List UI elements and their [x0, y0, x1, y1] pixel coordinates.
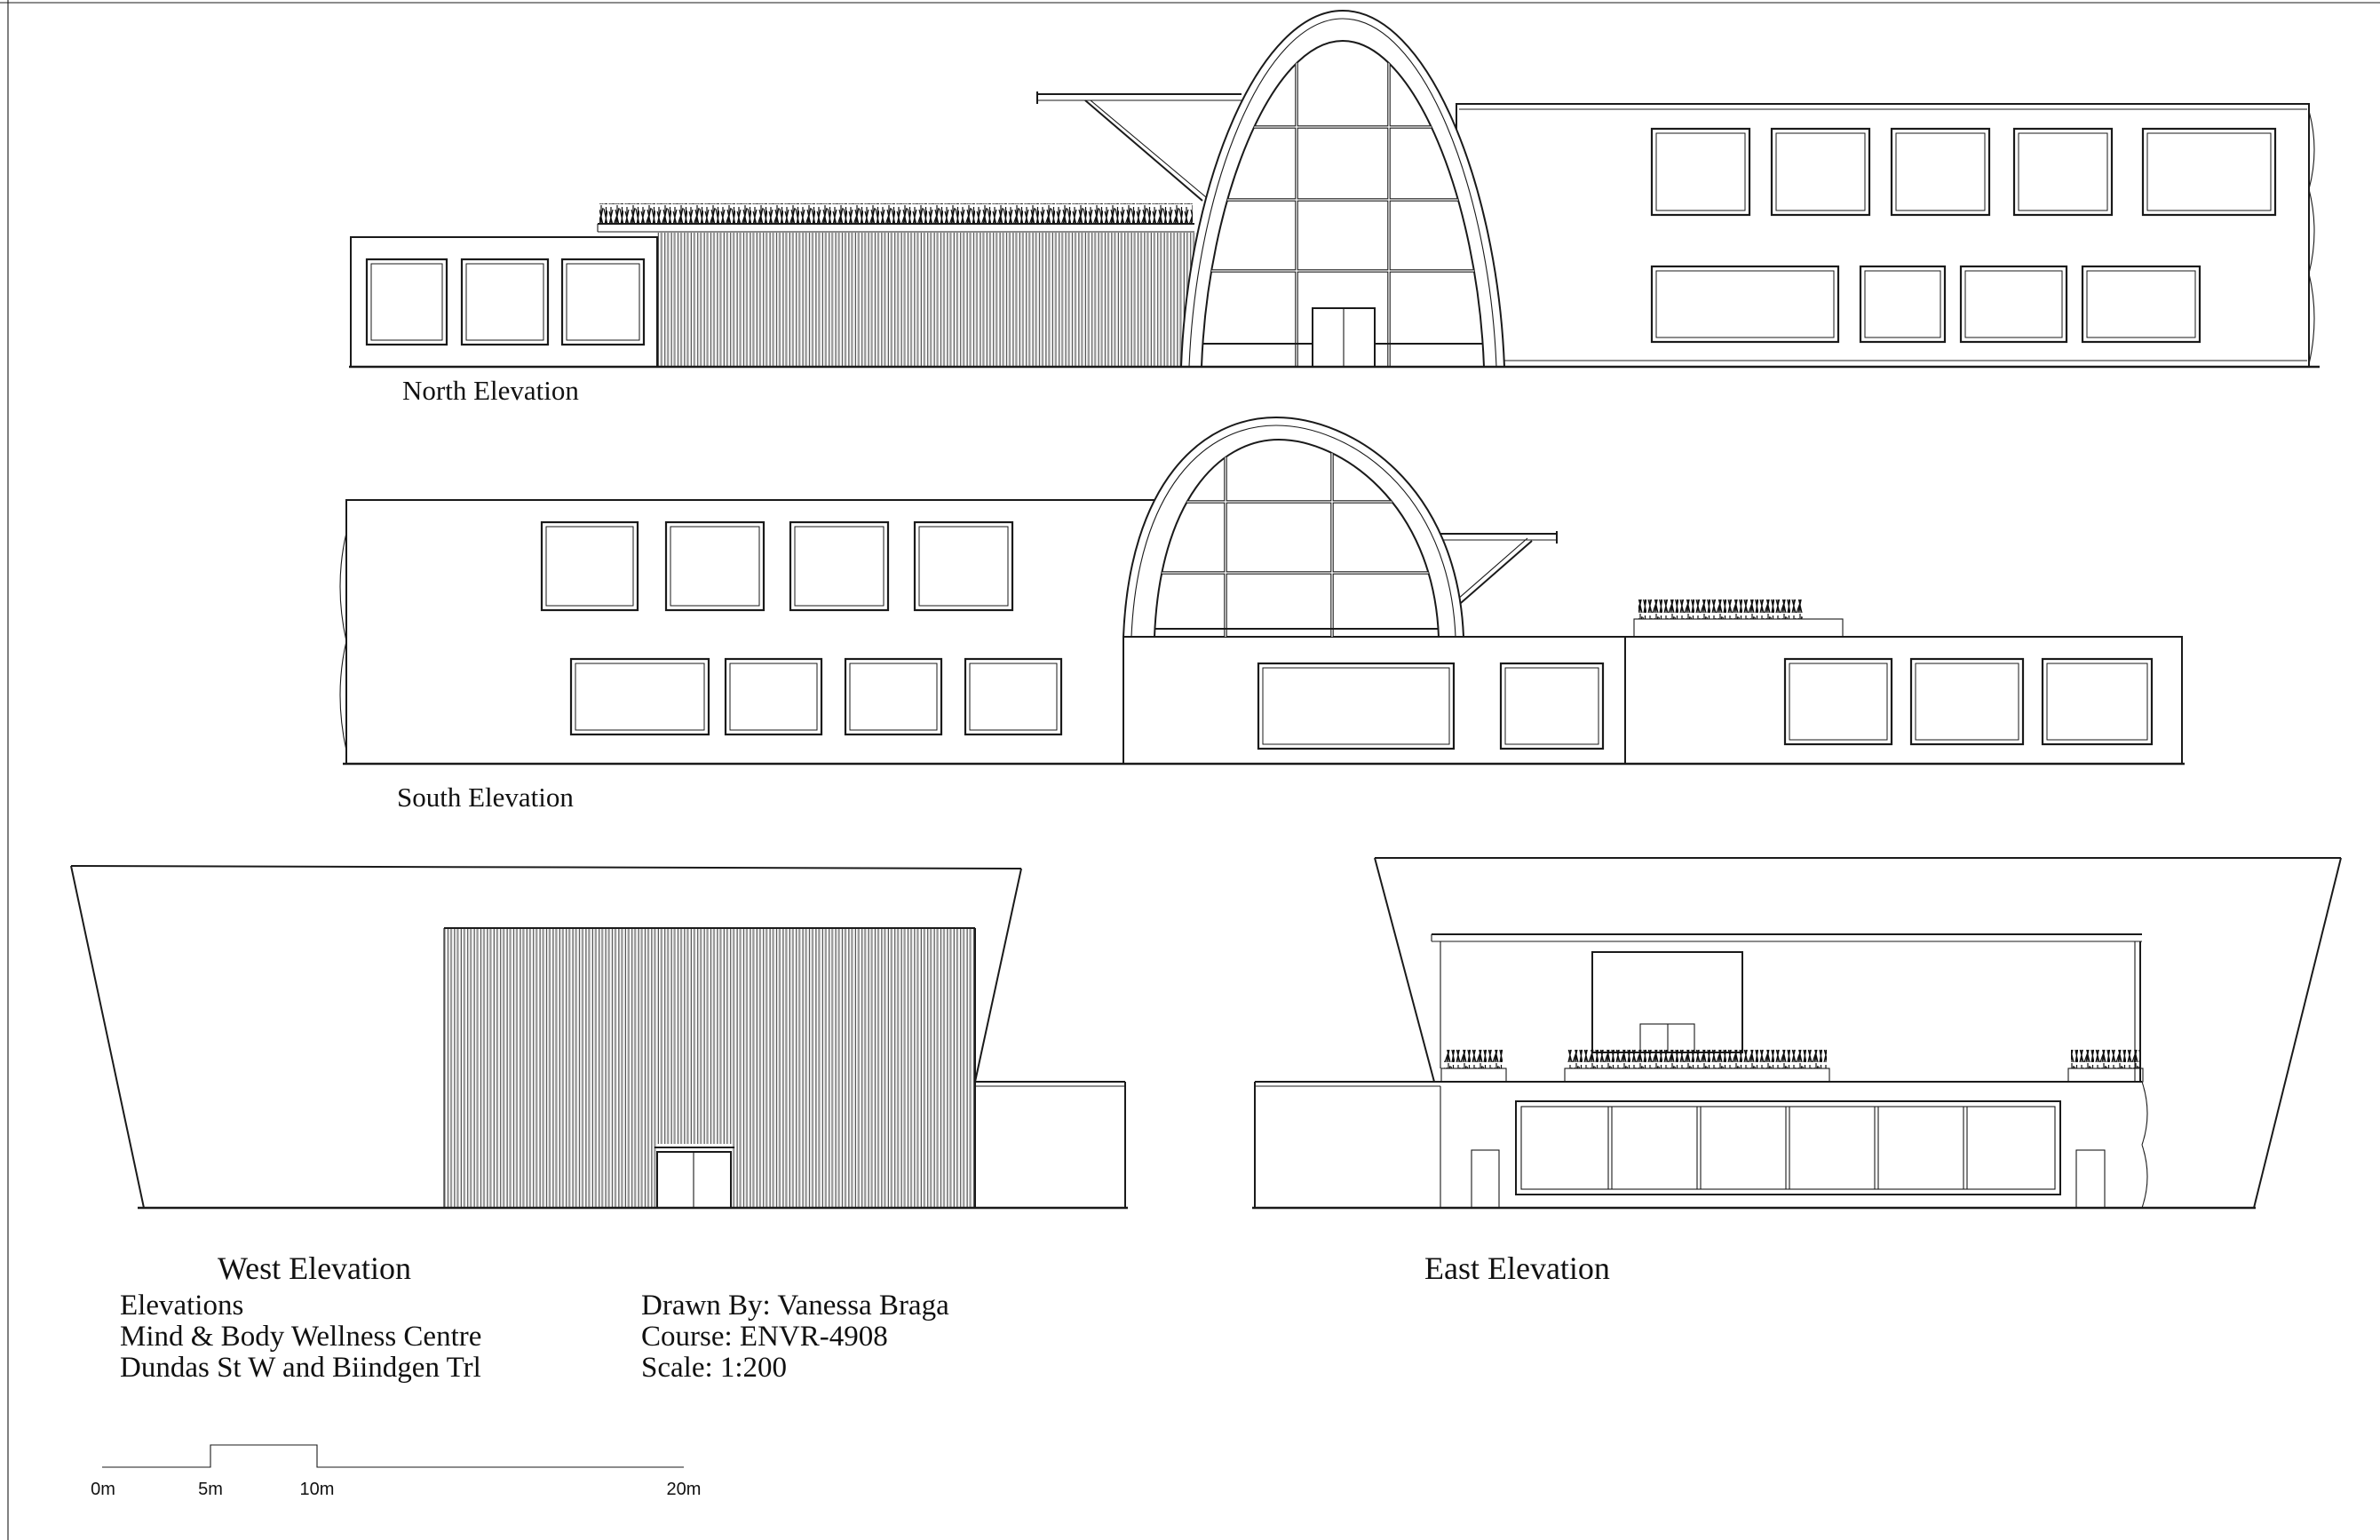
south-left-wing-windows-lower: [571, 659, 1061, 734]
north-entry-arch: [1181, 11, 1504, 367]
east-left-edge: [1375, 858, 1434, 1082]
south-front-windows: [1258, 663, 1603, 749]
title-drawn-by: Drawn By: Vanessa Braga: [641, 1290, 949, 1322]
north-left-wing-windows: [367, 259, 644, 345]
west-parapet: [71, 866, 1021, 869]
east-elevation: East Elevation: [1252, 858, 2341, 1286]
east-roof-planters: [1441, 1050, 2143, 1082]
title-course: Course: ENVR-4908: [641, 1321, 888, 1353]
east-right-post: [2076, 1150, 2105, 1208]
east-elevation-label: East Elevation: [1424, 1250, 1610, 1286]
west-elevation-label: West Elevation: [218, 1250, 411, 1286]
north-right-wing-windows-upper: [1652, 129, 2275, 215]
east-clerestory: [1592, 952, 1742, 1052]
west-elevation: West Elevation: [71, 866, 1128, 1286]
east-window-band: [1516, 1101, 2060, 1195]
west-door: [654, 1144, 734, 1208]
south-break-line: [340, 533, 346, 750]
north-slat-cladding: [657, 233, 1261, 367]
north-green-roof-grass: [599, 203, 1193, 224]
title-location: Dundas St W and Biindgen Trl: [120, 1352, 481, 1384]
west-annex: [975, 1082, 1125, 1208]
elevations-canvas: North Elevation: [0, 0, 2380, 1540]
title-scale: Scale: 1:200: [641, 1352, 787, 1384]
scale-bar-0m: 0m: [91, 1480, 115, 1499]
south-elevation: South Elevation: [340, 417, 2185, 813]
east-left-post: [1472, 1150, 1499, 1208]
scale-bar-20m: 20m: [667, 1480, 702, 1499]
east-right-edge: [2254, 858, 2341, 1208]
east-break-line: [2142, 1082, 2147, 1208]
title-project-name: Mind & Body Wellness Centre: [120, 1321, 481, 1353]
north-elevation: North Elevation: [349, 11, 2320, 406]
south-arch: [1123, 417, 1464, 637]
title-drawing-name: Elevations: [120, 1290, 243, 1322]
title-block: Elevations Mind & Body Wellness Centre D…: [120, 1290, 949, 1384]
west-left-edge: [71, 866, 144, 1208]
scale-bar-10m: 10m: [300, 1480, 335, 1499]
west-right-edge: [975, 869, 1021, 1082]
north-elevation-label: North Elevation: [402, 375, 579, 406]
drawing-sheet: North Elevation: [0, 0, 2380, 1540]
scale-bar-line: [102, 1445, 684, 1467]
south-elevation-label: South Elevation: [397, 782, 574, 813]
south-green-roof-planter: [1634, 599, 1843, 637]
south-right-wing-windows: [1785, 659, 2152, 744]
north-right-wing-windows-lower: [1652, 266, 2200, 342]
scale-bar: 0m 5m 10m 20m: [91, 1445, 701, 1499]
scale-bar-5m: 5m: [198, 1480, 223, 1499]
